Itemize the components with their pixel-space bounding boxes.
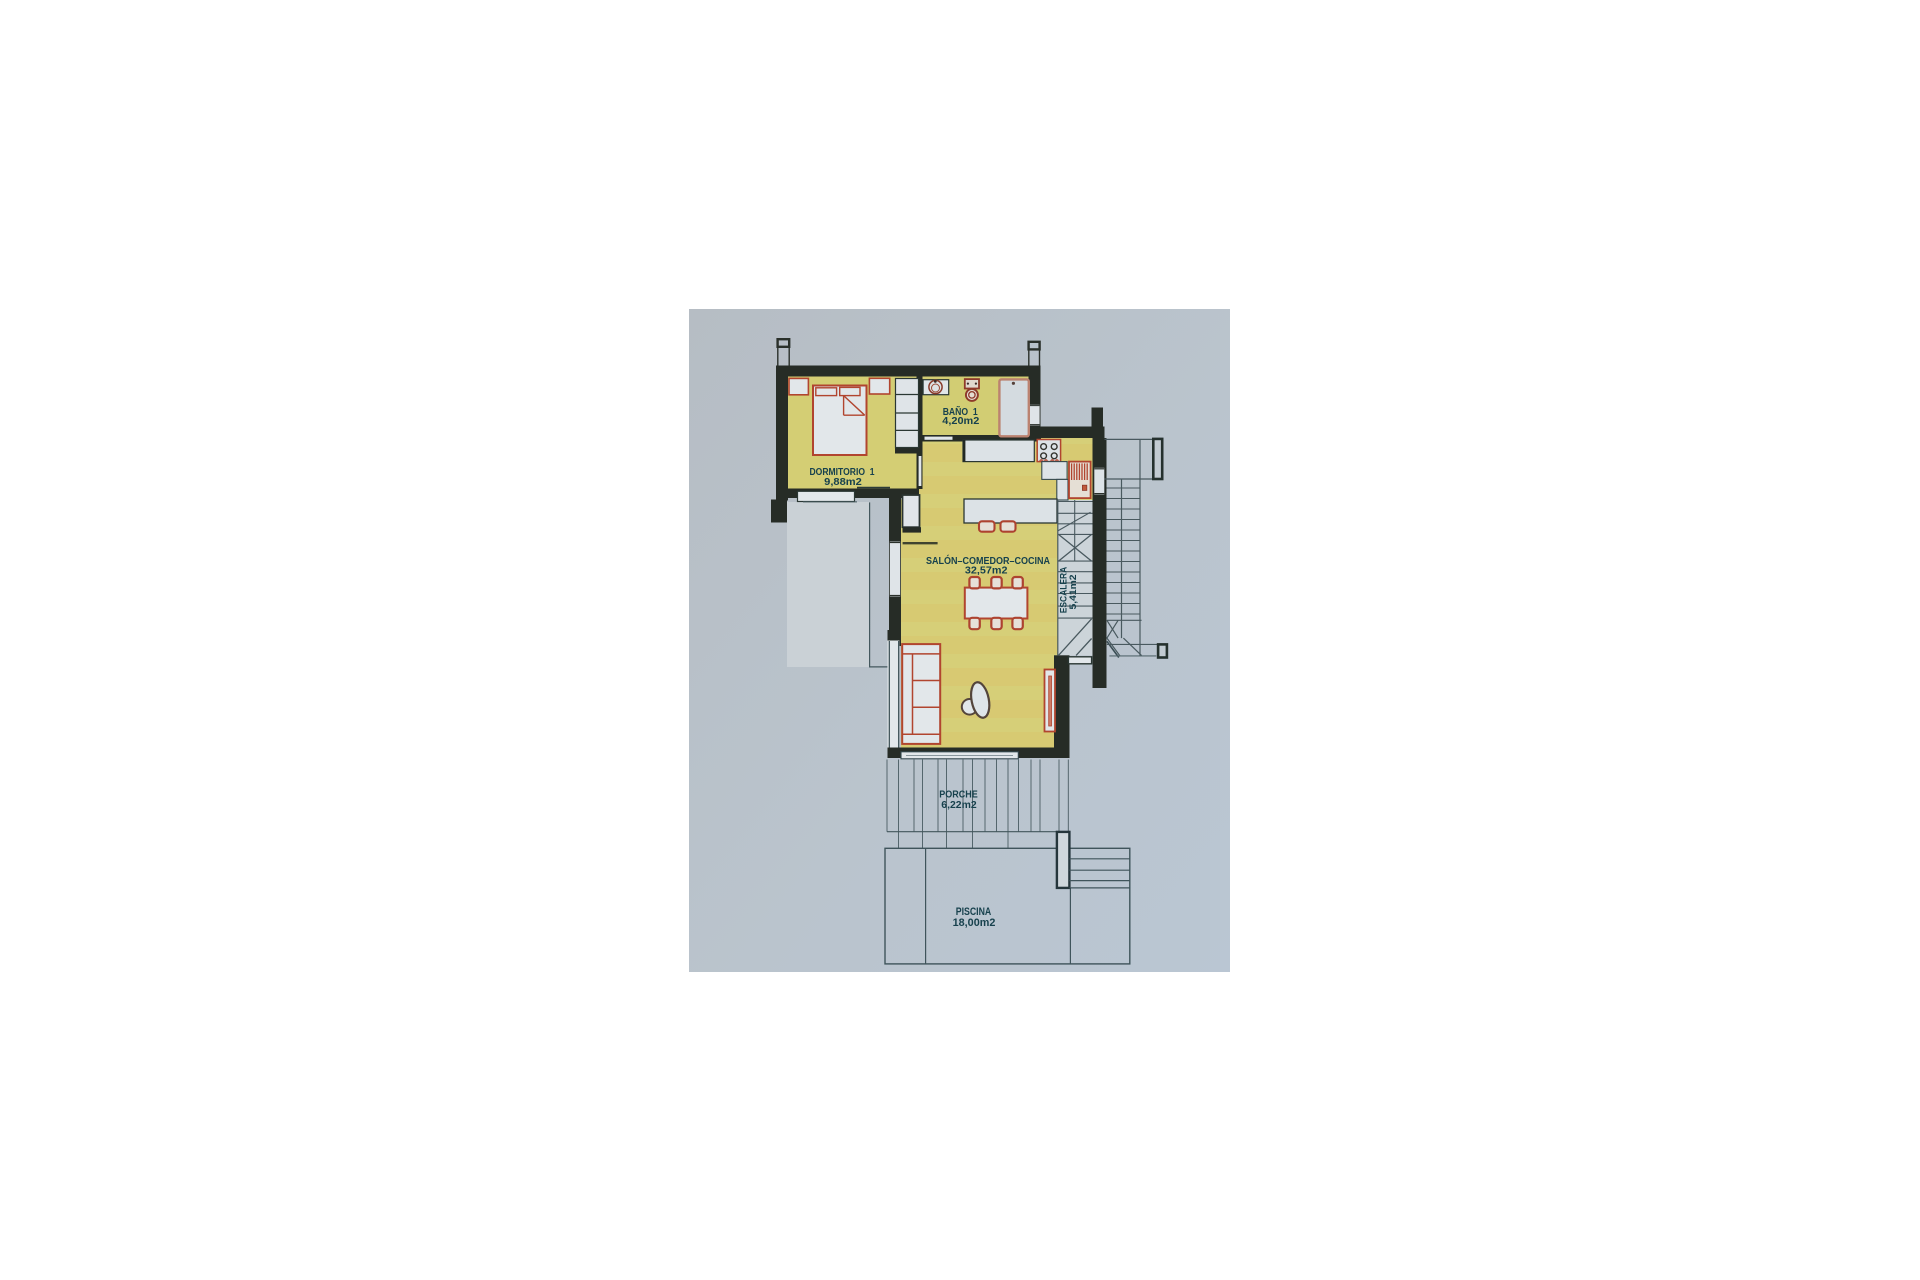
svg-text:18,00m2: 18,00m2 [953,917,996,929]
svg-text:6,22m2: 6,22m2 [941,799,977,811]
svg-text:5,41m2: 5,41m2 [1067,575,1078,610]
svg-text:9,88m2: 9,88m2 [824,476,862,488]
svg-text:4,20m2: 4,20m2 [942,416,979,427]
svg-text:32,57m2: 32,57m2 [965,566,1008,577]
